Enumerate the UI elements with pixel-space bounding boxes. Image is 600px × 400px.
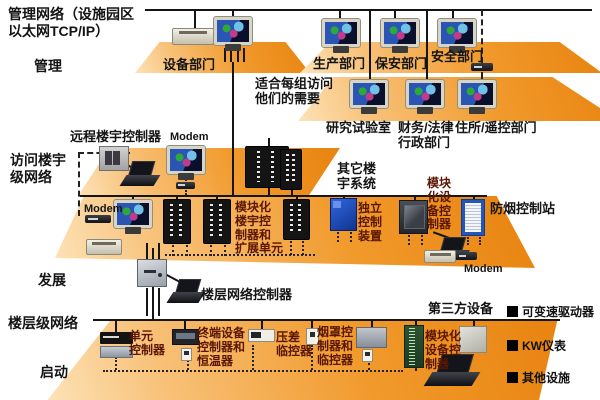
label-safety-dept: 安全部门 — [431, 49, 483, 64]
printer-icon — [86, 239, 122, 255]
label-pressure-monitor: 压差 临控器 — [276, 331, 312, 359]
connector-line — [369, 10, 371, 81]
desktop-computer-icon — [438, 19, 476, 47]
label-remote-building-controller: 远程楼宇控制器 — [70, 129, 161, 144]
building-controller-cabinet-icon — [203, 199, 231, 244]
desktop-computer-icon — [322, 19, 360, 47]
label-hood-controller: 烟罩控 制器和 临控器 — [317, 326, 353, 367]
connector-line — [232, 62, 234, 196]
label-terminal-controller: 终端设备 控制器和 恒温器 — [197, 327, 245, 368]
connector-line — [158, 288, 160, 316]
label-modular-building-controller: 模块化 楼宇控 制器和 扩展单元 — [235, 201, 283, 256]
thermostat-icon — [181, 348, 192, 361]
connector-line — [302, 241, 304, 255]
desktop-computer-icon — [167, 146, 205, 174]
level-label-floor: 楼层级网络 — [8, 315, 78, 332]
label-floor-modular-equipment-controller: 模块化 设备控 制器 — [425, 330, 461, 371]
label-research-lab: 研究试验室 — [326, 120, 391, 135]
label-modem-left: Modem — [84, 203, 123, 216]
building-controller-cabinet-icon — [280, 149, 302, 190]
pressure-monitor-icon — [248, 329, 275, 342]
modular-equipment-controller-icon — [399, 200, 428, 234]
label-equipment-dept: 设备部门 — [163, 57, 215, 72]
printer-icon — [424, 250, 456, 263]
connector-line — [467, 237, 469, 245]
smoke-control-station-icon — [461, 199, 485, 236]
laptop-icon — [123, 161, 157, 186]
label-security-dept: 保安部门 — [375, 56, 427, 71]
modem-icon — [85, 215, 111, 223]
connector-line — [146, 288, 148, 316]
legend-item-kw-meter: KW仪表 — [507, 337, 566, 354]
desktop-computer-icon — [214, 17, 252, 45]
thermostat-icon — [362, 349, 373, 362]
level-label-startup: 启动 — [40, 364, 68, 381]
connector-line — [290, 241, 292, 255]
label-smoke-control-station: 防烟控制站 — [490, 201, 555, 216]
legend-square-icon — [507, 306, 518, 317]
building-controller-cabinet-icon — [283, 199, 310, 240]
modem-icon — [176, 182, 195, 189]
label-residence-dept: 住所/遥控部门 — [455, 120, 537, 135]
legend-item-variable-speed-drive: 可变速驱动器 — [507, 303, 594, 320]
legend-label: KW仪表 — [522, 337, 566, 354]
label-other-building-systems: 其它楼 宇系统 — [337, 161, 376, 192]
level-label-development: 发展 — [38, 272, 66, 289]
connector-line — [194, 10, 196, 28]
building-controller-cabinet-icon — [163, 199, 191, 244]
connector-line — [291, 190, 293, 196]
level-label-management: 管理 — [34, 58, 62, 75]
legend-item-other-facilities: 其他设施 — [507, 369, 570, 386]
modular-equipment-cabinet-icon — [404, 325, 424, 368]
connector-line — [337, 232, 339, 242]
label-access-note: 适合每组访问 他们的需要 — [255, 76, 333, 107]
desktop-computer-icon — [458, 80, 496, 108]
label-standalone-control: 独立 控制 装置 — [358, 202, 382, 243]
controller-panel-icon — [356, 327, 387, 348]
network-architecture-diagram: 管理网络（设施园区 以太网TCP/IP） 管理 访问楼宇 级网络 发展 楼层级网… — [0, 0, 600, 400]
connector-line — [103, 370, 403, 372]
label-modem-top: Modem — [170, 131, 209, 144]
label-floor-network-controller: 楼层网络控制器 — [201, 287, 292, 302]
connector-line — [243, 48, 245, 62]
connector-line — [368, 363, 370, 370]
floor-network-controller-icon — [137, 259, 167, 287]
connector-line — [408, 235, 410, 245]
label-modem-right: Modem — [464, 263, 503, 276]
page-title: 管理网络（设施园区 以太网TCP/IP） — [8, 6, 134, 39]
connector-line — [187, 360, 189, 370]
label-unit-controller: 单元 控制器 — [129, 330, 165, 358]
printer-icon — [172, 28, 214, 45]
legend-square-icon — [507, 372, 518, 383]
connector-line — [421, 235, 423, 245]
connector-line — [252, 345, 254, 370]
standalone-control-device-icon — [330, 198, 357, 231]
connector-line — [479, 237, 481, 245]
label-modular-equipment-controller: 模块 化设 备控 制器 — [427, 177, 451, 232]
desktop-computer-icon — [350, 80, 388, 108]
modem-icon — [456, 252, 477, 260]
desktop-computer-icon — [381, 19, 419, 47]
connector-line — [350, 232, 352, 242]
legend-label: 可变速驱动器 — [522, 303, 594, 320]
connector-line — [115, 357, 117, 370]
legend-label: 其他设施 — [522, 369, 570, 386]
label-finance-legal: 财务/法律 行政部门 — [398, 120, 454, 151]
legend-square-icon — [507, 340, 518, 351]
terminal-controller-icon — [172, 329, 199, 345]
third-party-device-icon — [459, 326, 487, 353]
label-production-dept: 生产部门 — [313, 56, 365, 71]
label-third-party-devices: 第三方设备 — [428, 301, 493, 316]
connector-line — [78, 152, 80, 216]
desktop-computer-icon — [406, 80, 444, 108]
level-label-access: 访问楼宇 级网络 — [10, 152, 66, 185]
laptop-icon — [170, 279, 202, 303]
